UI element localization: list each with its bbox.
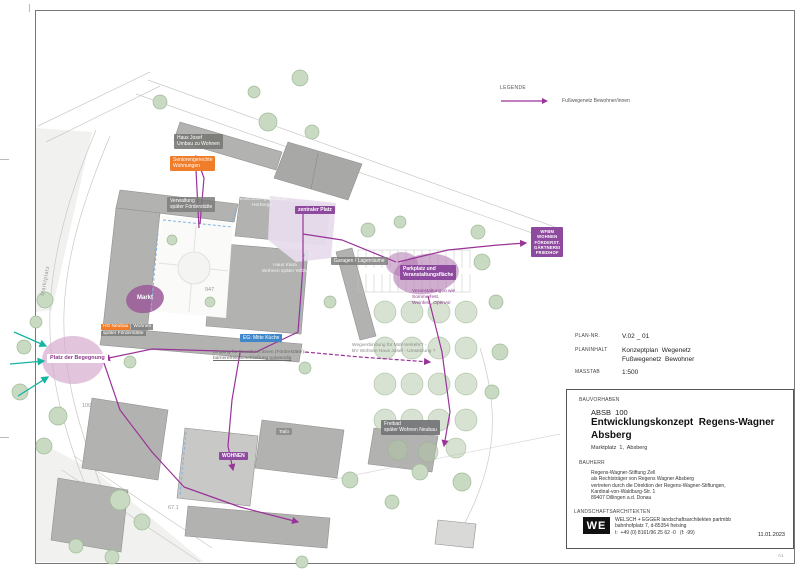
ziele-line5: FRIEDHOF (534, 250, 560, 255)
legend: LEGENDE Fußwegenetz Bewohner/innen (500, 85, 630, 105)
label-parkplatz: Parkplatz und Veranstaltungsfläche (400, 265, 456, 280)
note-muell: Wegverbindung für Müll-Verkehr? - BV Woh… (352, 343, 435, 355)
legend-title: LEGENDE (500, 85, 630, 91)
project-address: Marktplatz 1, Absberg (591, 445, 647, 451)
label-freibad: Freibad später Wohnen Neubau (381, 420, 440, 435)
label-verwaltung-line2: später Förderstätte (170, 204, 212, 210)
note-eingang: Eingang für Bewohner:innen (Förderstätte… (213, 350, 305, 362)
ziele-line3: FÖRDERST. (534, 240, 560, 245)
firm-line3: t: +49 (0) 8161/96 25 62 -0 (f: -99) (615, 530, 731, 536)
parcel-number-100: 100 (82, 403, 91, 409)
planinhalt-line2: Fußwegenetz Bewohner (622, 356, 694, 363)
label-zentraler-platz: zentraler Platz (295, 206, 335, 214)
label-parkplatz-line2: Veranstaltungsfläche (403, 272, 453, 278)
label-haus-klara-line2: Wohnen später WfbM (249, 269, 321, 275)
label-freibad-line2: später Wohnen Neubau (384, 427, 437, 433)
hg-neubau-chip: HG Neubau (101, 324, 130, 330)
label-haus-josef-line2: Umbau zu Wohnen (177, 141, 220, 147)
firm-address: WELSCH + EGGER landschaftsarchitekten pa… (615, 517, 731, 536)
plan-nr-value: V.02 _ 01 (622, 333, 649, 340)
project-code: ABSB 100 (591, 408, 628, 417)
planinhalt-label: PLANINHALT (575, 347, 622, 363)
label-veranstaltung-line2: Herberge (224, 203, 300, 209)
label-hg-neubau: HG Neubau Wohnen später Förderstätte (101, 324, 153, 337)
title-block: BAUVORHABEN ABSB 100 Entwicklungskonzept… (566, 389, 794, 549)
label-trafo: Trafo (276, 428, 292, 435)
hg-neubau-line2: später Förderstätte (101, 331, 146, 336)
label-markt: Markt (121, 295, 169, 301)
label-haus-josef: Haus Josef Umbau zu Wohnen (174, 134, 223, 149)
planinhalt-line1: Konzeptplan Wegenetz (622, 347, 694, 354)
hg-neubau-line1: Wohnen (131, 324, 153, 330)
project-title-line1: Entwicklungskonzept Regens-Wagner (591, 417, 775, 428)
ziele-line2: WOHNEN (534, 234, 560, 239)
bauherr-label: BAUHERR (579, 460, 605, 466)
masstab-value: 1:500 (622, 369, 638, 376)
bauherr-line5: 89407 Dillingen a.d. Donau (591, 495, 726, 501)
firm-logo: WE (583, 517, 610, 534)
bauherr-line3: vertreten durch die Direktion der Regens… (591, 483, 726, 489)
label-kueche: EG: Mitte Küche (240, 334, 282, 342)
parcel-number-947: 947 (205, 287, 214, 293)
parcel-number-67: 67.1 (168, 505, 179, 511)
label-seniorenwohnen: Seniorengerechte Wohnungen (170, 156, 215, 171)
label-seniorenwohnen-line2: Wohnungen (173, 163, 212, 169)
bauvorhaben-label: BAUVORHABEN (579, 397, 620, 403)
note-muell-line2: BV Wohnen Haus Josef - Umsetzung ? (352, 349, 435, 355)
parkplatz-note3: Weinfest, OpenAir (412, 301, 455, 307)
note-eingang-line2: barrierefreie Erschließung notwendig (213, 356, 305, 362)
label-garagen: Garagen / Lagerräume (331, 257, 388, 265)
plan-sheet: { "sheet": { "format_note": "A1", "date"… (0, 0, 806, 570)
legend-item-label: Fußwegenetz Bewohner/innen (562, 98, 630, 104)
label-wohnen: WOHNEN (219, 452, 248, 460)
bauherr-address: Regens-Wagner-Stiftung Zell als Rechtstr… (591, 470, 726, 501)
landschaftsarchitekten-label: LANDSCHAFTSARCHITEKTEN (574, 509, 650, 515)
plan-date: 11.01.2023 (758, 532, 785, 538)
plan-header: PLAN-NR. V.02 _ 01 PLANINHALT Konzeptpla… (575, 333, 790, 376)
plan-nr-label: PLAN-NR. (575, 333, 622, 340)
label-ziele-box: WFBM WOHNEN FÖRDERST. GÄRTNEREI FRIEDHOF (531, 227, 563, 257)
label-verwaltung: Verwaltung später Förderstätte (167, 197, 215, 212)
masstab-label: MASSTAB (575, 369, 622, 376)
label-platz-der-begegnung: Platz der Begegnung (47, 354, 108, 363)
format-note: A1 (778, 553, 784, 558)
legend-route-line (500, 97, 550, 105)
label-veranstaltungsgebaeude: Veranstaltungsgebäude Herberge (224, 197, 300, 209)
label-parkplatz-notes: Veranstaltungen wie Sommerfest, Weinfest… (412, 289, 455, 308)
label-haus-klara: Haus Klara Wohnen später WfbM (249, 263, 321, 275)
project-title-line2: Absberg (591, 430, 632, 441)
